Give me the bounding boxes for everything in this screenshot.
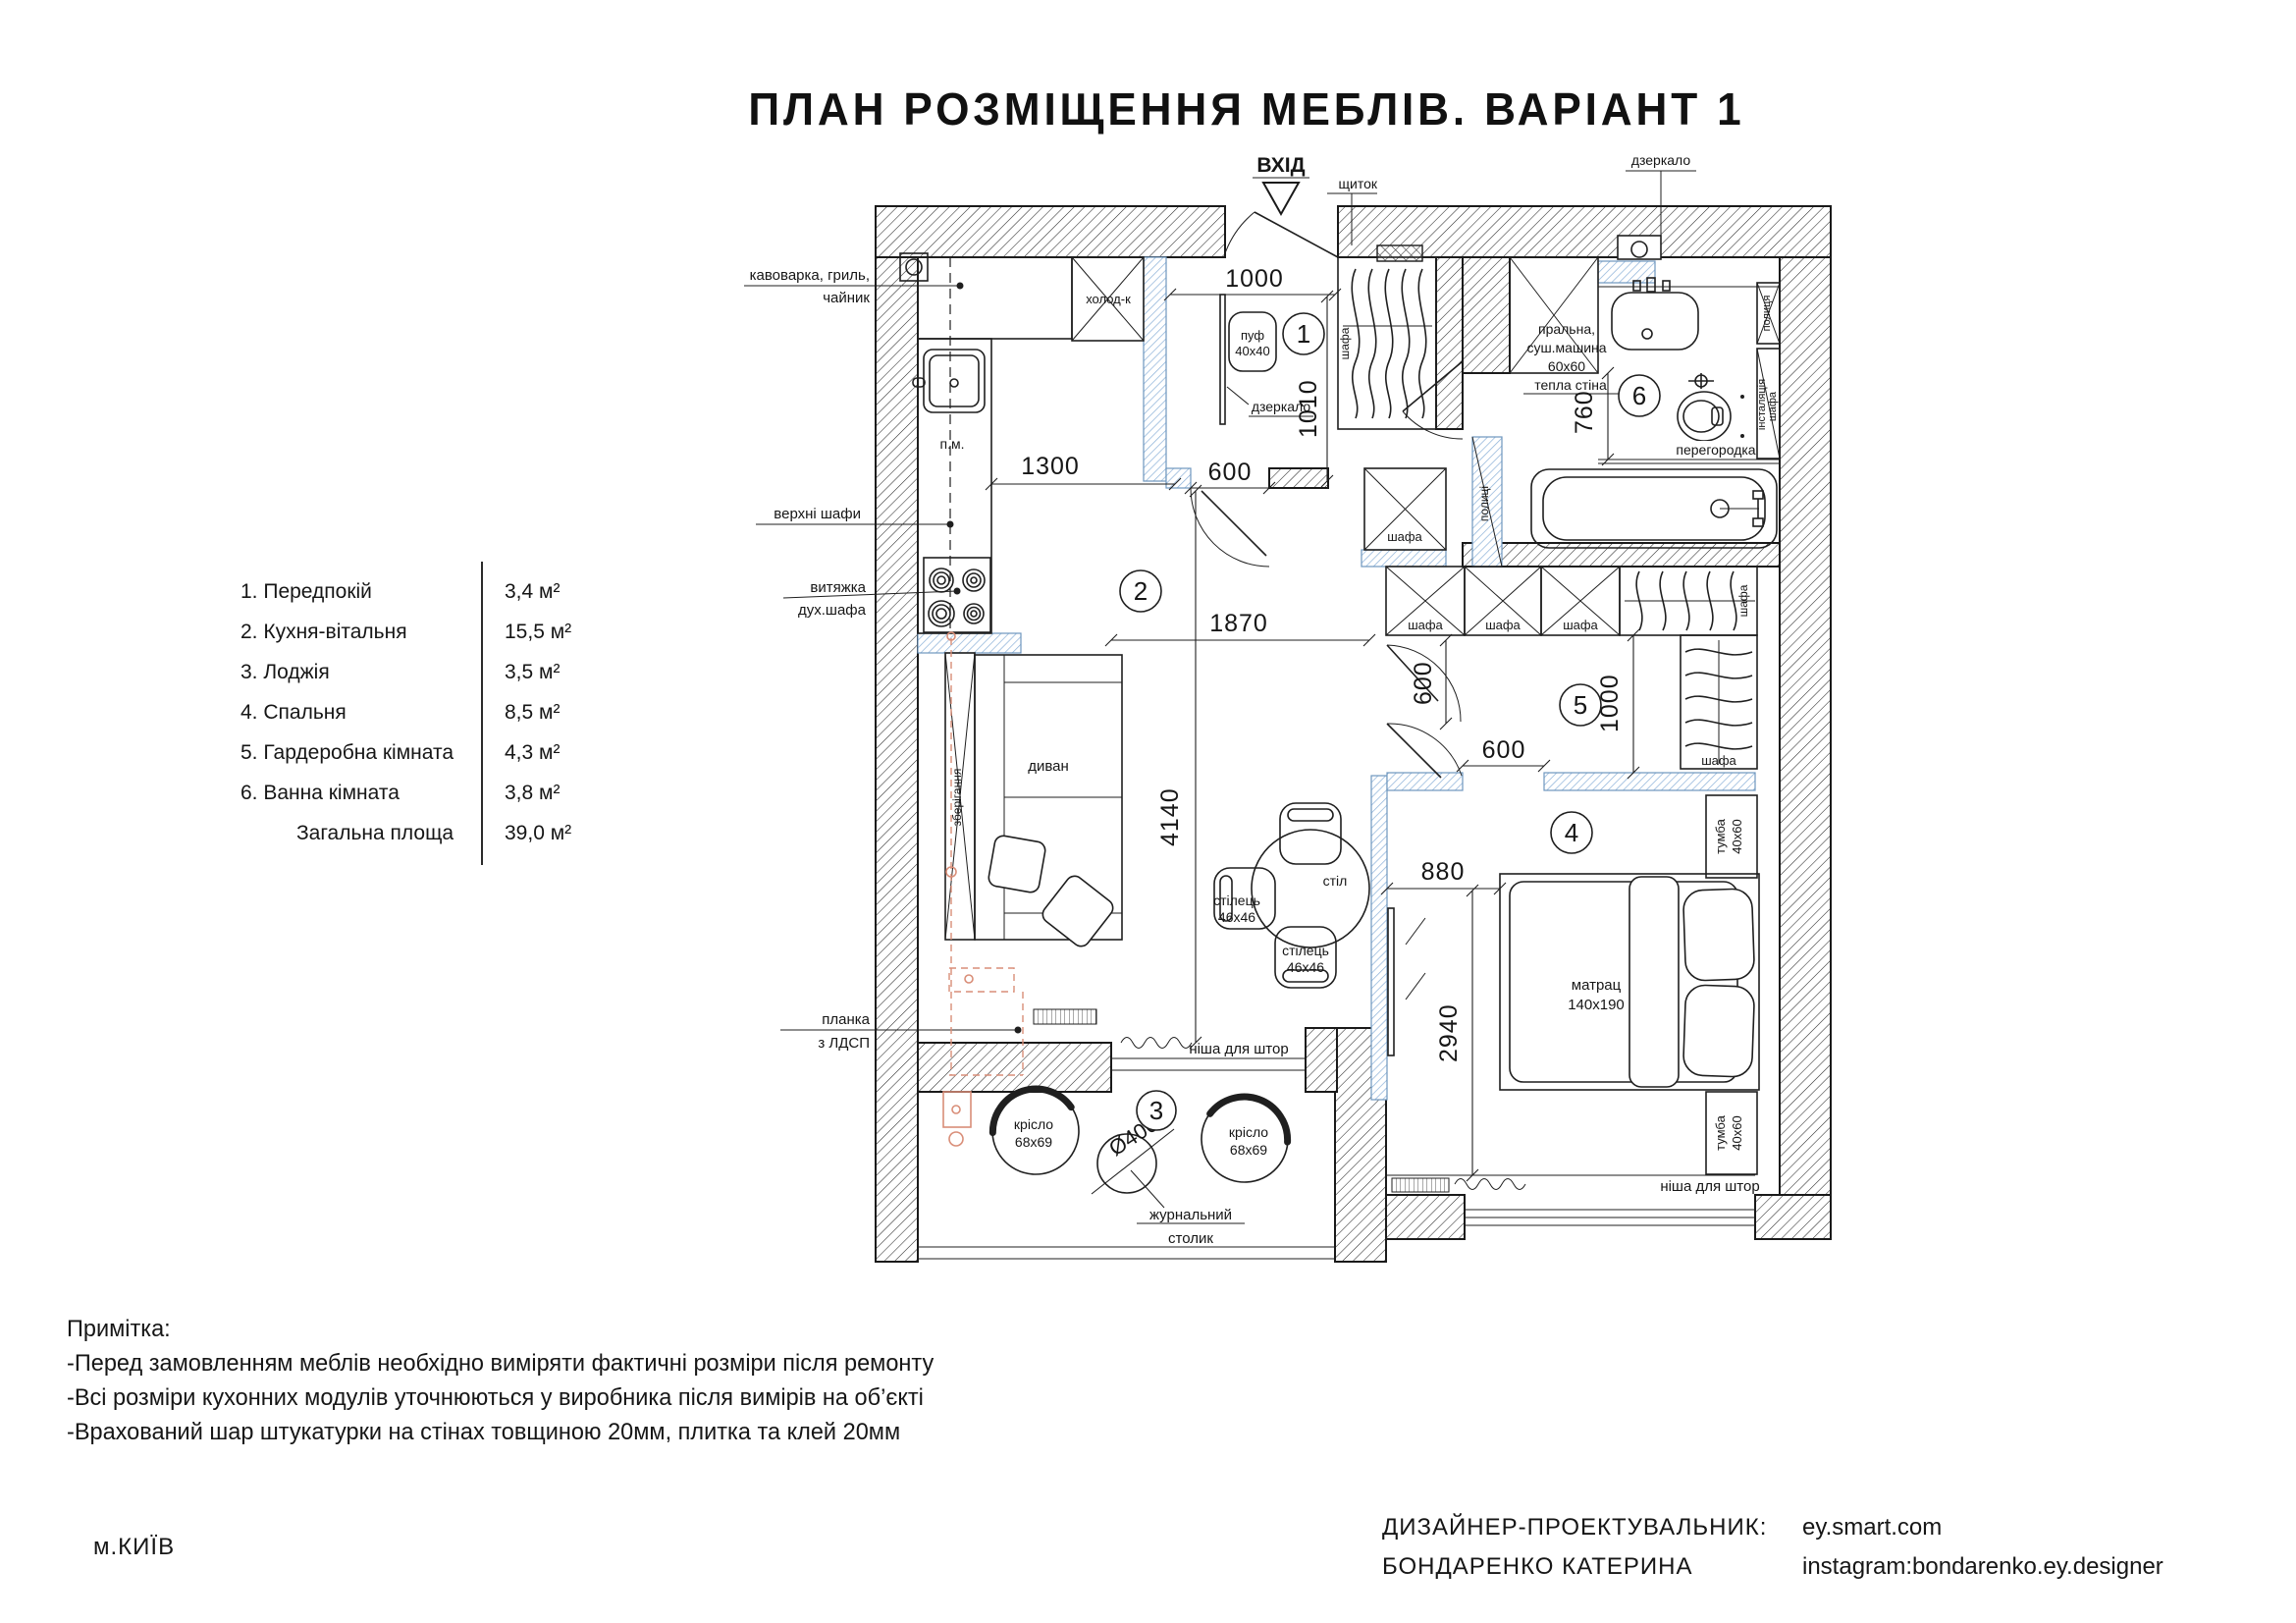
chair-size: 46x46	[1218, 909, 1255, 925]
washer-size: 60x60	[1548, 358, 1585, 374]
partition-label: перегородка	[1676, 442, 1755, 458]
nightstand-size: 40x60	[1730, 819, 1744, 853]
sofa-pillow	[988, 835, 1046, 893]
dim-1300: 1300	[1021, 453, 1080, 480]
entrance-arrow-icon	[1263, 183, 1299, 214]
dim-760: 760	[1571, 390, 1598, 434]
wardrobe-label: шафа	[1387, 529, 1422, 544]
dim-1010: 1010	[1295, 379, 1322, 438]
legend-room-name: 5. Гардеробна кімната	[240, 741, 481, 765]
pillow	[1682, 985, 1754, 1077]
room-number-2: 2	[1134, 576, 1148, 606]
room-number-5: 5	[1574, 690, 1587, 720]
sofa-pillow	[1040, 873, 1117, 950]
shelf-label: полиця	[1761, 296, 1773, 332]
room-number-6: 6	[1632, 381, 1646, 410]
pouf-label: пуф	[1241, 328, 1264, 343]
wardrobe-label: шафа	[1485, 618, 1521, 632]
curtain-niche-label: ніша для штор	[1189, 1041, 1288, 1057]
kettle-label: чайник	[823, 290, 870, 306]
stove-burners	[929, 568, 985, 626]
links-block: ey.smart.com instagram:bondarenko.ey.des…	[1802, 1508, 2163, 1587]
city-label: м.КИЇВ	[93, 1534, 175, 1561]
fridge-label: холод-к	[1086, 292, 1131, 306]
side-wardrobe-label: шафа	[1701, 753, 1736, 768]
armchair-size: 68x69	[1015, 1134, 1052, 1150]
note-line: -Перед замовленням меблів необхідно вимі…	[67, 1346, 934, 1380]
notes-block: Примітка: -Перед замовленням меблів необ…	[67, 1312, 934, 1449]
nightstand-label: тумба	[1713, 818, 1728, 853]
closet-label: шафа	[1338, 327, 1352, 359]
bath-mirror-label: дзеркало	[1631, 152, 1691, 168]
pillow	[1682, 889, 1754, 981]
legend-divider	[481, 562, 483, 865]
kitchen: холод-к п.м.	[900, 253, 1144, 633]
hanger-run-label: шафа	[1736, 584, 1750, 617]
bedroom: матрац 140x190 тумба 40x60 тумба 40x60 н…	[1388, 795, 1760, 1195]
oven-label: дух.шафа	[798, 602, 867, 619]
legend-room-name: 2. Кухня-вітальня	[240, 621, 481, 644]
designer-label: ДИЗАЙНЕР-ПРОЕКТУВАЛЬНИК:	[1382, 1508, 1767, 1547]
legend-room-name: 4. Спальня	[240, 701, 481, 725]
room-legend: 1. Передпокій3,4 м² 2. Кухня-вітальня15,…	[240, 571, 571, 853]
sofa-label: диван	[1028, 758, 1069, 775]
pouf-size: 40x40	[1235, 344, 1269, 358]
planka-label: планка	[822, 1011, 870, 1028]
chair-label: стілець	[1282, 943, 1329, 958]
note-line: -Всі розміри кухонних модулів уточнюютьс…	[67, 1380, 934, 1415]
storage-label: зберігання	[950, 769, 964, 827]
panel-label: щиток	[1338, 176, 1377, 191]
entrance-label: ВХІД	[1256, 154, 1305, 177]
site-link: ey.smart.com	[1802, 1508, 2163, 1547]
legend-room-area: 15,5 м²	[481, 621, 571, 644]
dim-1870: 1870	[1209, 610, 1268, 637]
chair-size: 46x46	[1287, 959, 1324, 975]
duvet	[1629, 877, 1679, 1087]
legend-room-area: 8,5 м²	[481, 701, 560, 725]
upper-cabinets-label: верхні шафи	[774, 506, 861, 522]
closet-hangers	[1352, 269, 1426, 418]
curtain-niche-label: ніша для штор	[1660, 1178, 1759, 1195]
note-line: -Врахований шар штукатурки на стінах тов…	[67, 1415, 934, 1449]
coffee-table-label-2: столик	[1168, 1230, 1213, 1247]
mattress-size: 140x190	[1568, 997, 1625, 1013]
wardrobe-label: шафа	[1408, 618, 1443, 632]
dishwasher-label: п.м.	[940, 436, 965, 452]
dim-600-hall: 600	[1208, 459, 1253, 486]
notes-heading: Примітка:	[67, 1312, 934, 1346]
armchair-size: 68x69	[1230, 1142, 1267, 1158]
dim-880: 880	[1421, 858, 1466, 886]
dim-4140: 4140	[1156, 787, 1184, 846]
hall-mirror	[1220, 295, 1225, 424]
dim-2940: 2940	[1435, 1003, 1463, 1062]
legend-room-area: 3,5 м²	[481, 661, 560, 684]
armchair-label: крісло	[1014, 1116, 1053, 1132]
page-title: ПЛАН РОЗМІЩЕННЯ МЕБЛІВ. ВАРІАНТ 1	[710, 82, 1784, 135]
entrance: ВХІД	[1225, 154, 1338, 257]
nightstand-size: 40x60	[1730, 1115, 1744, 1150]
chair-label: стілець	[1213, 893, 1260, 908]
walls	[876, 206, 1831, 1262]
table-label: стіл	[1323, 873, 1348, 889]
designer-name: БОНДАРЕНКО КАТЕРИНА	[1382, 1547, 1767, 1587]
nightstand-label: тумба	[1713, 1114, 1728, 1150]
furniture-plan-page: { "title": "ПЛАН РОЗМІЩЕННЯ МЕБЛІВ. ВАРІ…	[0, 0, 2296, 1623]
legend-room-name: 6. Ванна кімната	[240, 782, 481, 805]
washer-label-2: суш.машина	[1526, 340, 1606, 355]
installation-cabinet-label: шафа	[1767, 391, 1779, 421]
dim-600-door: 600	[1482, 736, 1526, 764]
instagram-link: instagram:bondarenko.ey.designer	[1802, 1547, 2163, 1587]
bedroom-mirror	[1388, 908, 1394, 1055]
legend-room-name: 1. Передпокій	[240, 580, 481, 604]
wardrobe-room: шафа шафа шафа шафа шафа шафа	[1364, 468, 1757, 778]
washer-label-1: пральна,	[1538, 321, 1595, 337]
dim-600-corridor: 600	[1410, 661, 1437, 705]
legend-total-area: 39,0 м²	[481, 822, 571, 845]
mattress-label: матрац	[1572, 977, 1622, 994]
shelves-label: полиці	[1477, 486, 1491, 521]
legend-room-area: 3,8 м²	[481, 782, 560, 805]
dim-1000: 1000	[1225, 265, 1284, 293]
hood-label: витяжка	[810, 579, 866, 596]
ldsp-label: з ЛДСП	[818, 1035, 870, 1052]
legend-total-label: Загальна площа	[240, 822, 481, 845]
legend-room-area: 3,4 м²	[481, 580, 560, 604]
floor-plan: ВХІД щиток холод-к п.м.	[628, 137, 1885, 1286]
designer-block: ДИЗАЙНЕР-ПРОЕКТУВАЛЬНИК: БОНДАРЕНКО КАТЕ…	[1382, 1508, 1767, 1587]
legend-room-area: 4,3 м²	[481, 741, 560, 765]
wardrobe-label: шафа	[1563, 618, 1598, 632]
shower-mixer	[1688, 373, 1714, 389]
coffee-table-label-1: журнальний	[1149, 1207, 1232, 1223]
armchair-label: крісло	[1229, 1124, 1268, 1140]
room-number-4: 4	[1565, 818, 1578, 847]
room-number-1: 1	[1297, 319, 1310, 349]
room-number-3: 3	[1149, 1096, 1163, 1125]
coffee-label: кавоварка, гриль,	[750, 267, 870, 284]
legend-room-name: 3. Лоджія	[240, 661, 481, 684]
